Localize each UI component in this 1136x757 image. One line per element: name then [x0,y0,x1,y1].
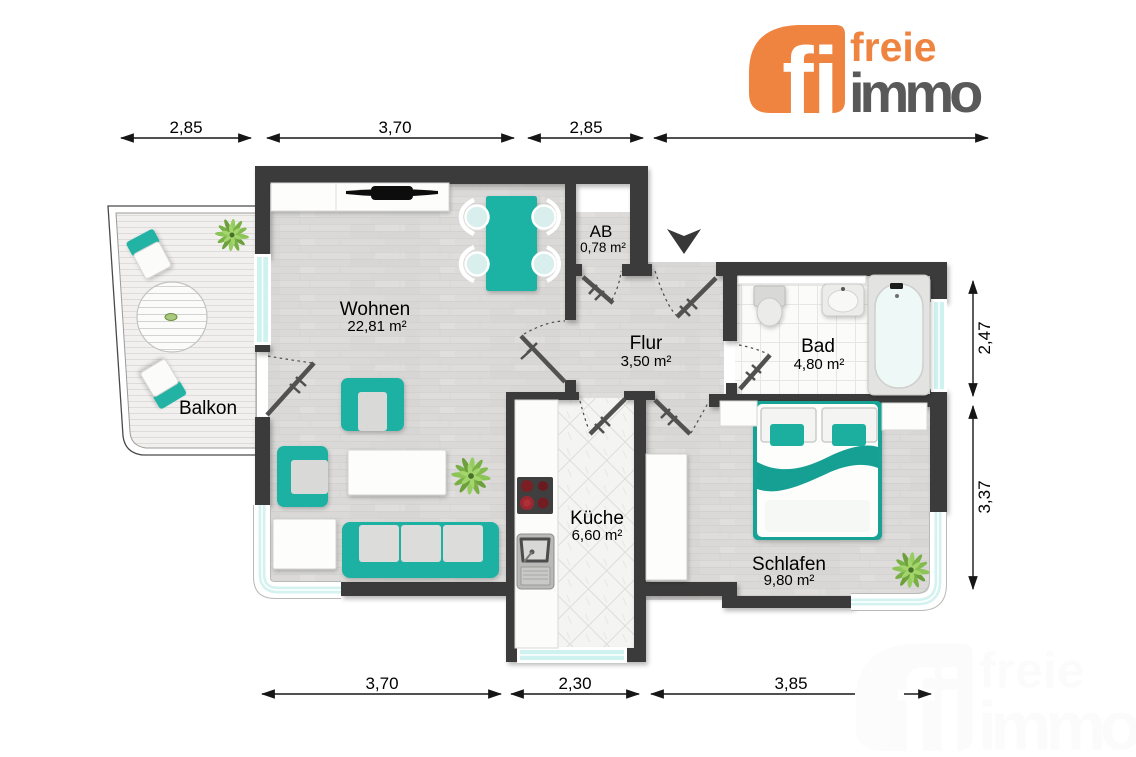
svg-text:4,80 m²: 4,80 m² [794,356,845,373]
svg-text:2,30: 2,30 [558,674,591,693]
svg-text:3,85: 3,85 [774,674,807,693]
svg-text:6,60 m²: 6,60 m² [572,527,623,544]
svg-text:Balkon: Balkon [179,398,237,419]
svg-text:0,78 m²: 0,78 m² [580,240,626,255]
svg-text:Wohnen: Wohnen [340,299,410,320]
svg-text:fi: fi [782,28,838,134]
svg-text:2,47: 2,47 [975,321,994,354]
svg-text:3,50 m²: 3,50 m² [621,353,672,370]
svg-text:AB: AB [590,222,613,241]
svg-text:Bad: Bad [801,336,835,357]
svg-text:Flur: Flur [630,333,663,354]
svg-text:3,70: 3,70 [365,674,398,693]
svg-text:3,37: 3,37 [975,480,994,513]
svg-text:fi: fi [896,646,964,757]
svg-text:Küche: Küche [570,508,624,529]
svg-text:3,70: 3,70 [378,118,411,137]
svg-text:immo: immo [849,61,982,124]
svg-text:22,81 m²: 22,81 m² [347,318,406,335]
svg-text:2,85: 2,85 [569,118,602,137]
svg-text:9,80 m²: 9,80 m² [764,572,815,589]
svg-text:2,85: 2,85 [169,118,202,137]
svg-text:immo: immo [978,689,1136,757]
